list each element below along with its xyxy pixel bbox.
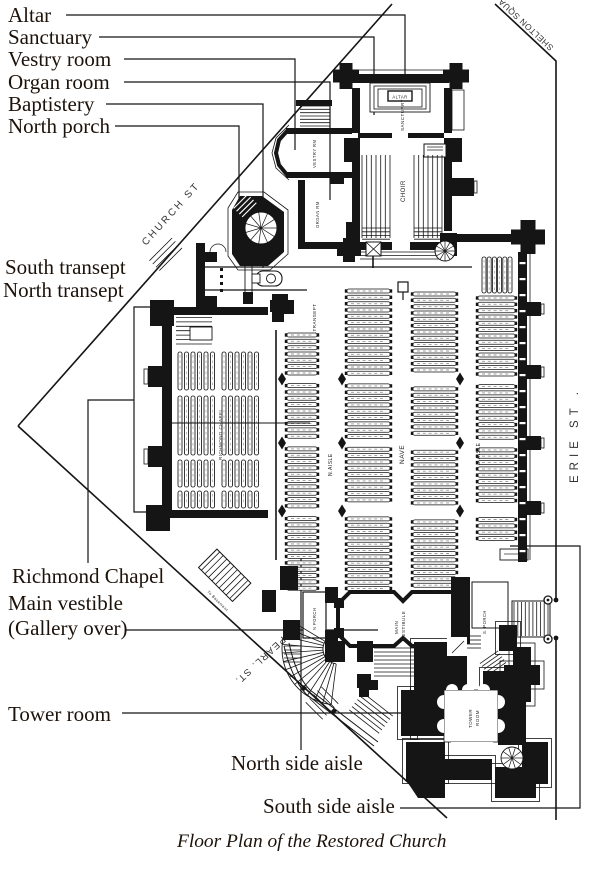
- svg-text:N.AISLE: N.AISLE: [328, 453, 334, 476]
- svg-text:North transept: North transept: [3, 278, 124, 302]
- svg-text:Organ room: Organ room: [8, 70, 110, 94]
- svg-text:MAIN: MAIN: [394, 621, 399, 634]
- svg-text:Tower room: Tower room: [8, 702, 111, 726]
- svg-text:Floor Plan of the Restored Chu: Floor Plan of the Restored Church: [176, 831, 446, 852]
- svg-text:S.AISLE: S.AISLE: [476, 442, 482, 465]
- svg-text:VESTIBULE: VESTIBULE: [401, 611, 406, 640]
- svg-text:TOWER: TOWER: [468, 709, 473, 728]
- svg-text:South transept: South transept: [5, 255, 126, 279]
- svg-text:(Gallery over): (Gallery over): [8, 616, 128, 640]
- svg-text:Baptistery: Baptistery: [8, 92, 95, 116]
- svg-text:Sanctuary: Sanctuary: [8, 25, 92, 49]
- svg-text:ORGAN RM: ORGAN RM: [315, 201, 320, 228]
- svg-text:ALTAR: ALTAR: [392, 95, 407, 100]
- svg-text:ERIE ST .: ERIE ST .: [569, 387, 581, 483]
- svg-text:South side aisle: South side aisle: [263, 794, 395, 818]
- svg-text:SANCTUARY: SANCTUARY: [400, 99, 405, 131]
- svg-text:Vestry room: Vestry room: [8, 47, 111, 71]
- svg-text:S. PORCH: S. PORCH: [482, 610, 487, 634]
- svg-text:RICHMOND CHAPEL: RICHMOND CHAPEL: [218, 408, 223, 460]
- svg-text:North side aisle: North side aisle: [231, 751, 363, 775]
- svg-text:North porch: North porch: [8, 114, 111, 138]
- svg-text:ROOM: ROOM: [475, 710, 480, 726]
- svg-text:N PORCH: N PORCH: [312, 608, 317, 631]
- svg-text:VESTRY RM: VESTRY RM: [312, 139, 317, 168]
- svg-text:CHOIR: CHOIR: [401, 180, 407, 202]
- svg-text:NAVE: NAVE: [399, 445, 406, 464]
- svg-text:N.TRANSEPT: N.TRANSEPT: [312, 303, 317, 337]
- svg-text:Richmond Chapel: Richmond Chapel: [12, 564, 164, 588]
- svg-text:Altar: Altar: [8, 3, 51, 27]
- svg-text:Main vestible: Main vestible: [8, 591, 123, 615]
